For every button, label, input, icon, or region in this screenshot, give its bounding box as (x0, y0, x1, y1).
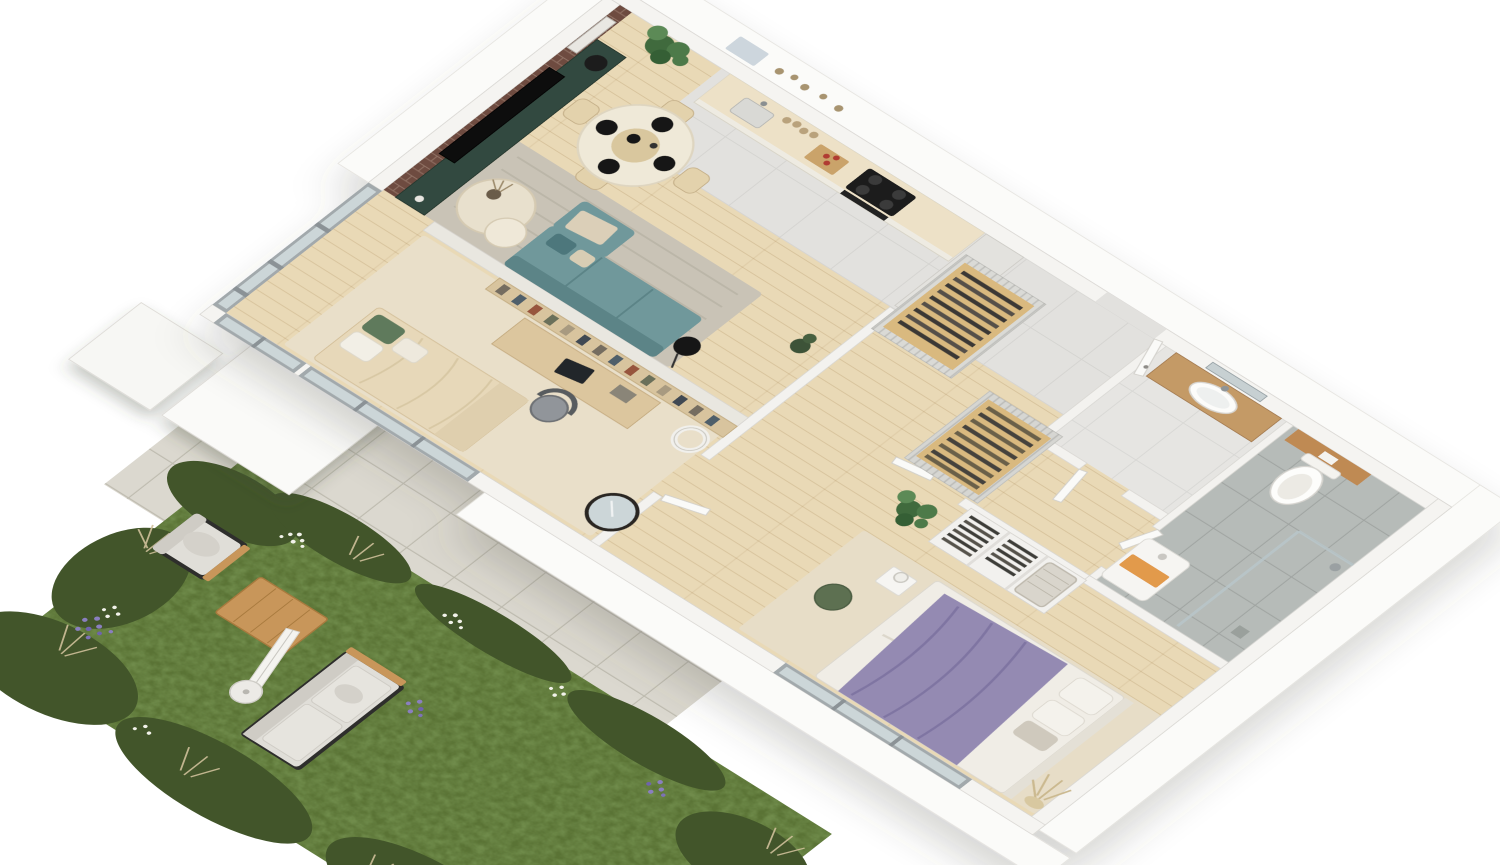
floor-plan-render (0, 0, 1500, 865)
floor-plan-stage (0, 0, 1500, 865)
